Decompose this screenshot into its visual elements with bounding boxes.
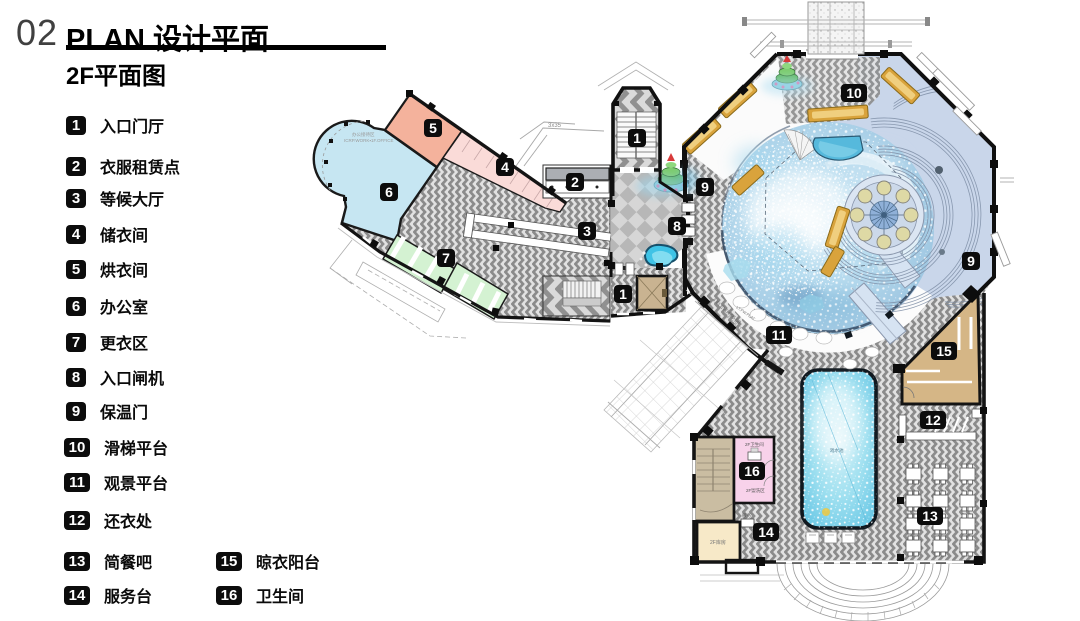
svg-text:3: 3 (583, 223, 591, 239)
svg-text:12: 12 (925, 412, 941, 428)
svg-text:戏水池: 戏水池 (830, 447, 844, 454)
svg-text:5: 5 (429, 120, 437, 136)
svg-text:2F库房: 2F库房 (710, 539, 726, 546)
svg-text:3x35: 3x35 (548, 123, 562, 129)
svg-text:13: 13 (922, 508, 938, 524)
svg-text:1: 1 (633, 130, 641, 146)
svg-text:2F盥洗区: 2F盥洗区 (746, 487, 765, 494)
svg-text:办公接待区: 办公接待区 (352, 131, 375, 138)
svg-text:2: 2 (571, 174, 579, 190)
svg-text:16: 16 (744, 463, 760, 479)
svg-text:2F卫生间: 2F卫生间 (745, 441, 764, 448)
svg-text:9: 9 (701, 179, 709, 195)
svg-text:6: 6 (385, 184, 393, 200)
svg-text:10: 10 (846, 85, 862, 101)
svg-text:9: 9 (967, 253, 975, 269)
svg-text:8: 8 (673, 218, 681, 234)
svg-text:11: 11 (772, 327, 787, 343)
svg-text:4: 4 (501, 159, 509, 175)
svg-text:1: 1 (619, 286, 627, 302)
svg-text:ICRP.WORK▪1F.OFFICE: ICRP.WORK▪1F.OFFICE (344, 138, 394, 143)
svg-text:15: 15 (936, 343, 952, 359)
svg-text:服务: 服务 (742, 512, 751, 519)
svg-text:7: 7 (442, 250, 450, 266)
svg-text:14: 14 (758, 524, 774, 540)
